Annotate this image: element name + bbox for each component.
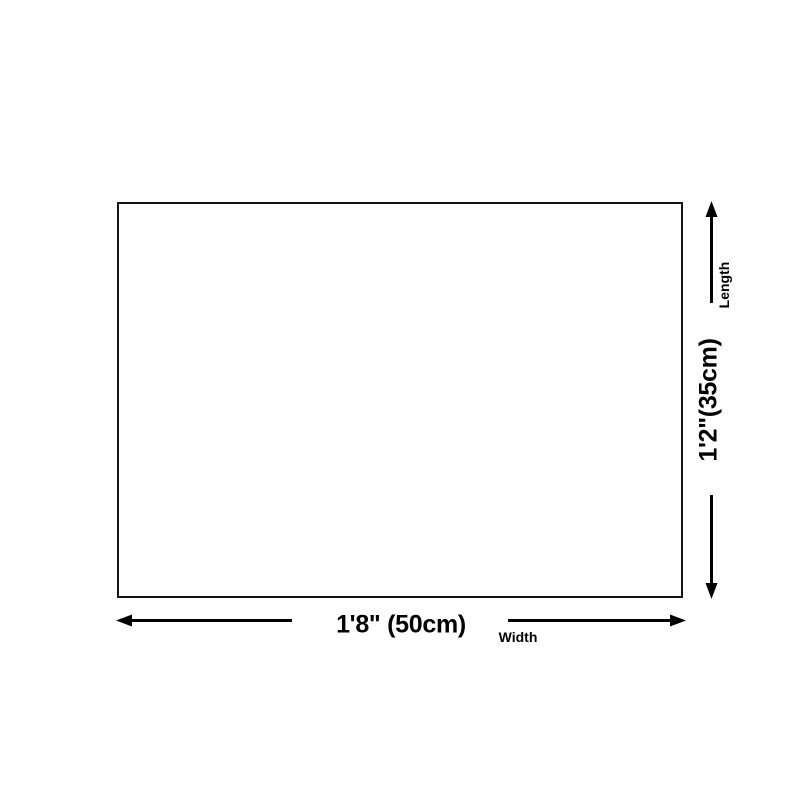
- length-dimension-label: Length: [716, 262, 732, 309]
- width-arrow-right-icon: [508, 615, 686, 627]
- product-dimension-diagram: 1'2"(35cm) Length 1'8" (50cm) Width: [0, 0, 800, 800]
- width-dimension-value: 1'8" (50cm): [336, 611, 466, 640]
- width-arrow-left-icon: [116, 615, 292, 627]
- width-dimension-label: Width: [499, 629, 538, 645]
- length-arrow-down-icon: [706, 495, 718, 599]
- product-image-placeholder: [117, 202, 683, 598]
- length-dimension-value: 1'2"(35cm): [695, 338, 724, 461]
